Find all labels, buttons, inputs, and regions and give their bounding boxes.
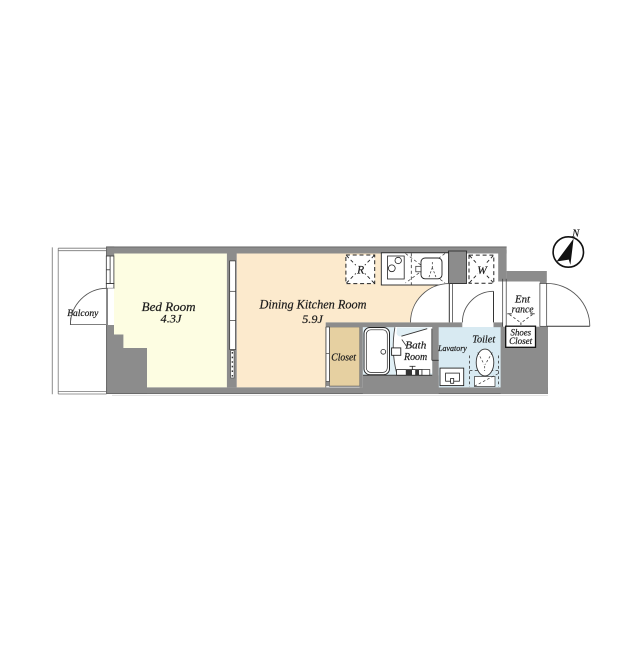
svg-text:R: R <box>356 265 364 277</box>
svg-text:Closet: Closet <box>509 337 532 347</box>
svg-text:Bath: Bath <box>405 340 426 352</box>
svg-text:5.9J: 5.9J <box>302 312 323 326</box>
svg-text:W: W <box>477 265 488 277</box>
svg-text:Toilet: Toilet <box>472 335 496 346</box>
svg-text:4.3J: 4.3J <box>161 312 183 326</box>
svg-text:Closet: Closet <box>331 353 356 364</box>
svg-text:Room: Room <box>403 351 427 363</box>
svg-text:N: N <box>571 229 580 240</box>
svg-text:Dining Kitchen Room: Dining Kitchen Room <box>259 296 367 311</box>
svg-text:Lavatory: Lavatory <box>437 343 467 353</box>
